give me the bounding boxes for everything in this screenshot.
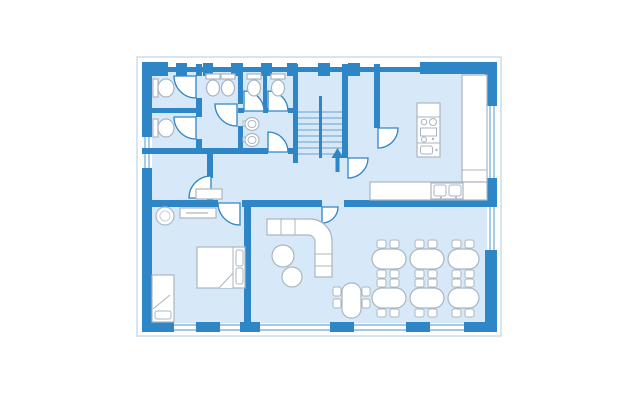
dining-chair (465, 309, 474, 317)
wall-bottom-seg-3 (240, 322, 260, 332)
wall-right-lower (485, 250, 497, 332)
dining-chair (377, 279, 386, 287)
kitchen-counter-right (462, 75, 487, 182)
dining-chair (415, 309, 424, 317)
column-top-6 (318, 63, 330, 76)
stair-stringer (319, 96, 322, 158)
stove-base-dot (435, 149, 437, 151)
dining-table (410, 288, 444, 308)
wall-bottom-seg-5 (406, 322, 430, 332)
dining-chair (333, 287, 341, 296)
dining-table (448, 249, 479, 269)
stove-knob-dot (432, 138, 434, 140)
dining-table (410, 249, 444, 269)
dining-chair (465, 270, 474, 278)
dining-chair (428, 309, 437, 317)
floor-plan (0, 0, 635, 400)
dining-chair (428, 279, 437, 287)
wall-bottom-seg-1 (142, 322, 174, 332)
dining-chair (333, 299, 341, 308)
column-top-7 (348, 63, 360, 76)
dining-chair (452, 240, 461, 248)
dining-chair (428, 240, 437, 248)
window-bottom-4 (354, 323, 406, 332)
column-top-left-corner (142, 62, 168, 76)
wall-wc-stalls-right-a (196, 64, 202, 76)
dining-chair (428, 270, 437, 278)
toilet-bowl-icon (222, 80, 235, 96)
dining-table (448, 288, 479, 308)
dining-table (372, 249, 406, 269)
wall-mid-wc-left-b (238, 126, 243, 152)
dining-chair (465, 279, 474, 287)
dining-chair (415, 279, 424, 287)
dining-chair (452, 309, 461, 317)
kitchen-sink-tap-dot (455, 197, 457, 199)
kitchen-sink-tap-dot (440, 197, 442, 199)
dining-chair (377, 240, 386, 248)
dining-chair (415, 270, 424, 278)
toilet-bowl-icon (207, 80, 220, 96)
kitchen-sink-basin-1 (434, 185, 446, 196)
window-bottom-2 (220, 323, 240, 332)
kitchen-counter-bottom (370, 182, 487, 200)
kitchen-sink-basin-2 (449, 185, 461, 196)
dining-chair (390, 270, 399, 278)
window-right-2 (487, 207, 497, 250)
toilet-cistern-icon (221, 74, 235, 79)
wall-bottom-seg-4 (330, 322, 354, 332)
wall-hall-south-2 (242, 200, 322, 207)
dining-table-vertical (342, 283, 361, 318)
wall-stall-doors-seg-3 (288, 108, 293, 113)
toilet-bowl-icon (248, 80, 261, 96)
hall-bench (196, 189, 222, 199)
wall-hall-south-3 (344, 200, 497, 207)
wall-duct-right (374, 64, 380, 128)
dining-chair (452, 270, 461, 278)
wall-hall-south-1 (142, 200, 218, 207)
toilet-cistern-icon (153, 79, 158, 97)
column-top-1 (176, 63, 187, 76)
wall-washroom-right (293, 64, 298, 163)
wall-stall-doors-seg-1 (238, 108, 244, 113)
wall-bottom-seg-2 (196, 322, 220, 332)
wall-wc-stalls-right-b (196, 98, 202, 117)
sink-basin-icon (245, 134, 259, 147)
wall-stair-right (342, 64, 348, 158)
toilet-cistern-icon (153, 119, 158, 137)
window-right-1 (487, 106, 497, 178)
floor-plan-canvas (0, 0, 635, 400)
toilet-cistern-icon (271, 74, 285, 79)
dining-chair (362, 287, 370, 296)
dining-chair (452, 279, 461, 287)
wall-storage-upper (207, 152, 213, 178)
dining-chair (415, 240, 424, 248)
dining-chair (390, 309, 399, 317)
wall-below-wc-left (142, 148, 268, 154)
round-stool (156, 207, 174, 225)
window-bottom-5 (430, 323, 464, 332)
round-side-table (282, 267, 302, 287)
dining-chair (377, 270, 386, 278)
toilet-bowl-icon (272, 80, 285, 96)
dining-chair (465, 240, 474, 248)
wall-mid-wc-divider (263, 64, 267, 110)
toilet-cistern-icon (247, 74, 261, 79)
dining-chair (362, 299, 370, 308)
wall-bottom-seg-6 (464, 322, 497, 332)
toilet-bowl-icon (158, 79, 174, 97)
dining-chair (390, 279, 399, 287)
window-bottom-3 (260, 323, 330, 332)
bed-pillow-icon (155, 311, 171, 319)
window-bottom-1 (174, 323, 196, 332)
sink-basin-icon (245, 118, 259, 131)
toilet-cistern-icon (206, 74, 220, 79)
bed-pillow-icon (236, 268, 243, 284)
dining-table (372, 288, 406, 308)
wall-mid-wc-left-a (238, 64, 243, 104)
dining-chair (390, 240, 399, 248)
dining-chair (377, 309, 386, 317)
wall-wc-stall-divider (142, 108, 196, 113)
bed-pillow-icon (236, 250, 243, 266)
wall-left-lower (142, 168, 152, 332)
toilet-bowl-icon (158, 119, 174, 137)
round-side-table (272, 245, 294, 267)
